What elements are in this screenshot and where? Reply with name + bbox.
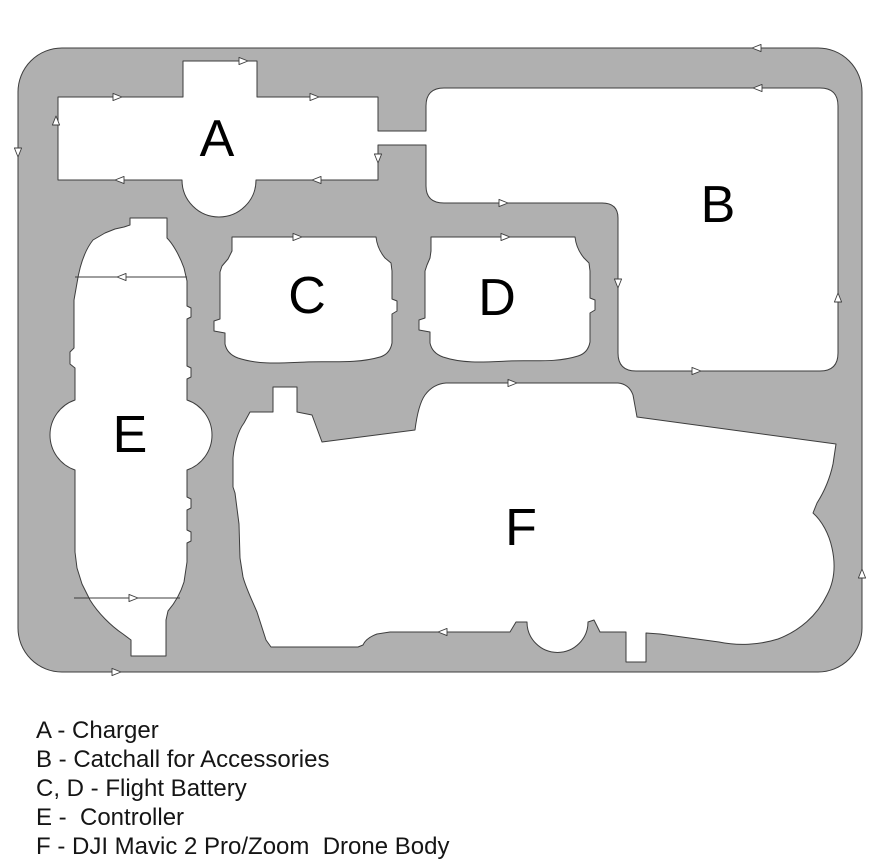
compartment-label-c: C [288, 267, 326, 325]
legend: A - Charger B - Catchall for Accessories… [36, 716, 449, 861]
compartment-label-e: E [113, 406, 148, 464]
foam-insert-diagram: A B C D E F A - Charger B - Catchall for… [0, 0, 882, 864]
compartment-label-a: A [200, 110, 235, 168]
legend-item: F - DJI Mavic 2 Pro/Zoom Drone Body [36, 832, 449, 861]
compartment-label-f: F [505, 499, 537, 557]
legend-item: A - Charger [36, 716, 449, 745]
compartment-label-b: B [701, 176, 736, 234]
legend-item: C, D - Flight Battery [36, 774, 449, 803]
legend-item: E - Controller [36, 803, 449, 832]
compartment-label-d: D [478, 269, 516, 327]
legend-item: B - Catchall for Accessories [36, 745, 449, 774]
